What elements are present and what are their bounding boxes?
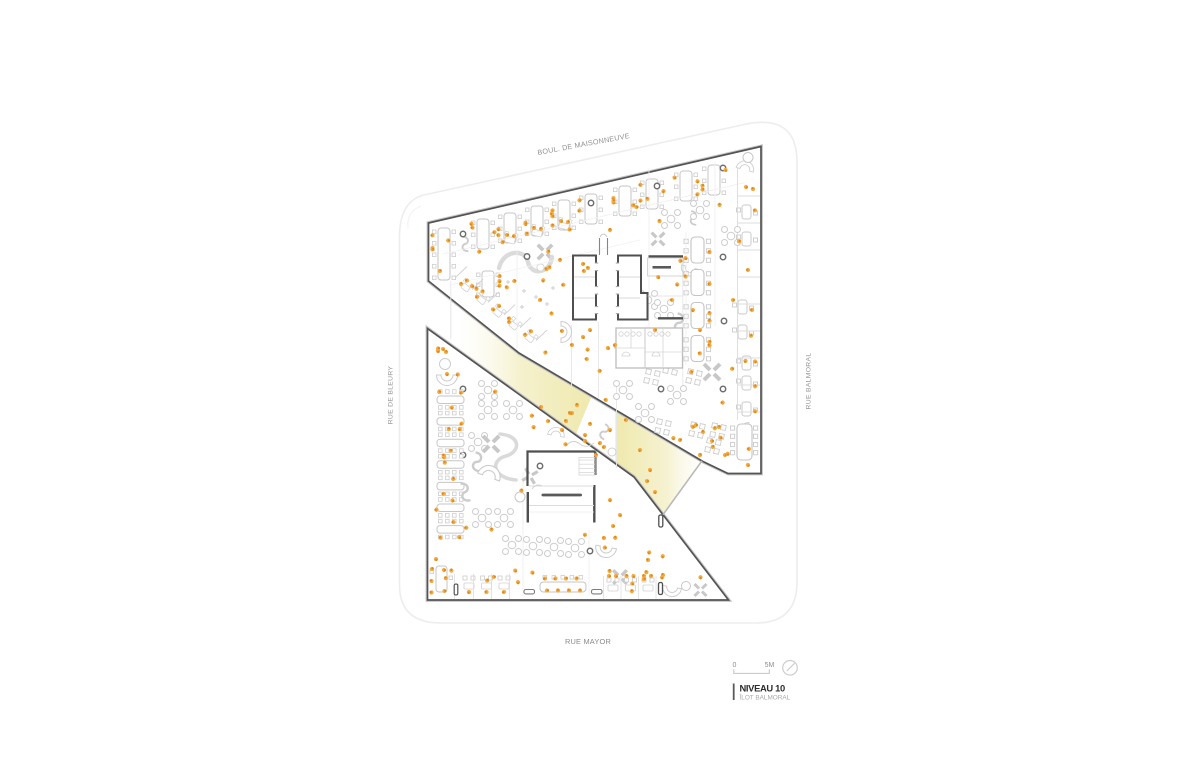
svg-text:RUE DE BLEURY: RUE DE BLEURY: [388, 366, 395, 425]
svg-text:RUE BALMORAL: RUE BALMORAL: [806, 353, 813, 410]
svg-text:ÎLOT BALMORAL: ÎLOT BALMORAL: [739, 693, 791, 702]
svg-text:NIVEAU 10: NIVEAU 10: [740, 683, 785, 694]
svg-text:RUE MAYOR: RUE MAYOR: [565, 637, 611, 646]
svg-text:5M: 5M: [765, 662, 775, 669]
svg-text:0: 0: [733, 662, 737, 669]
